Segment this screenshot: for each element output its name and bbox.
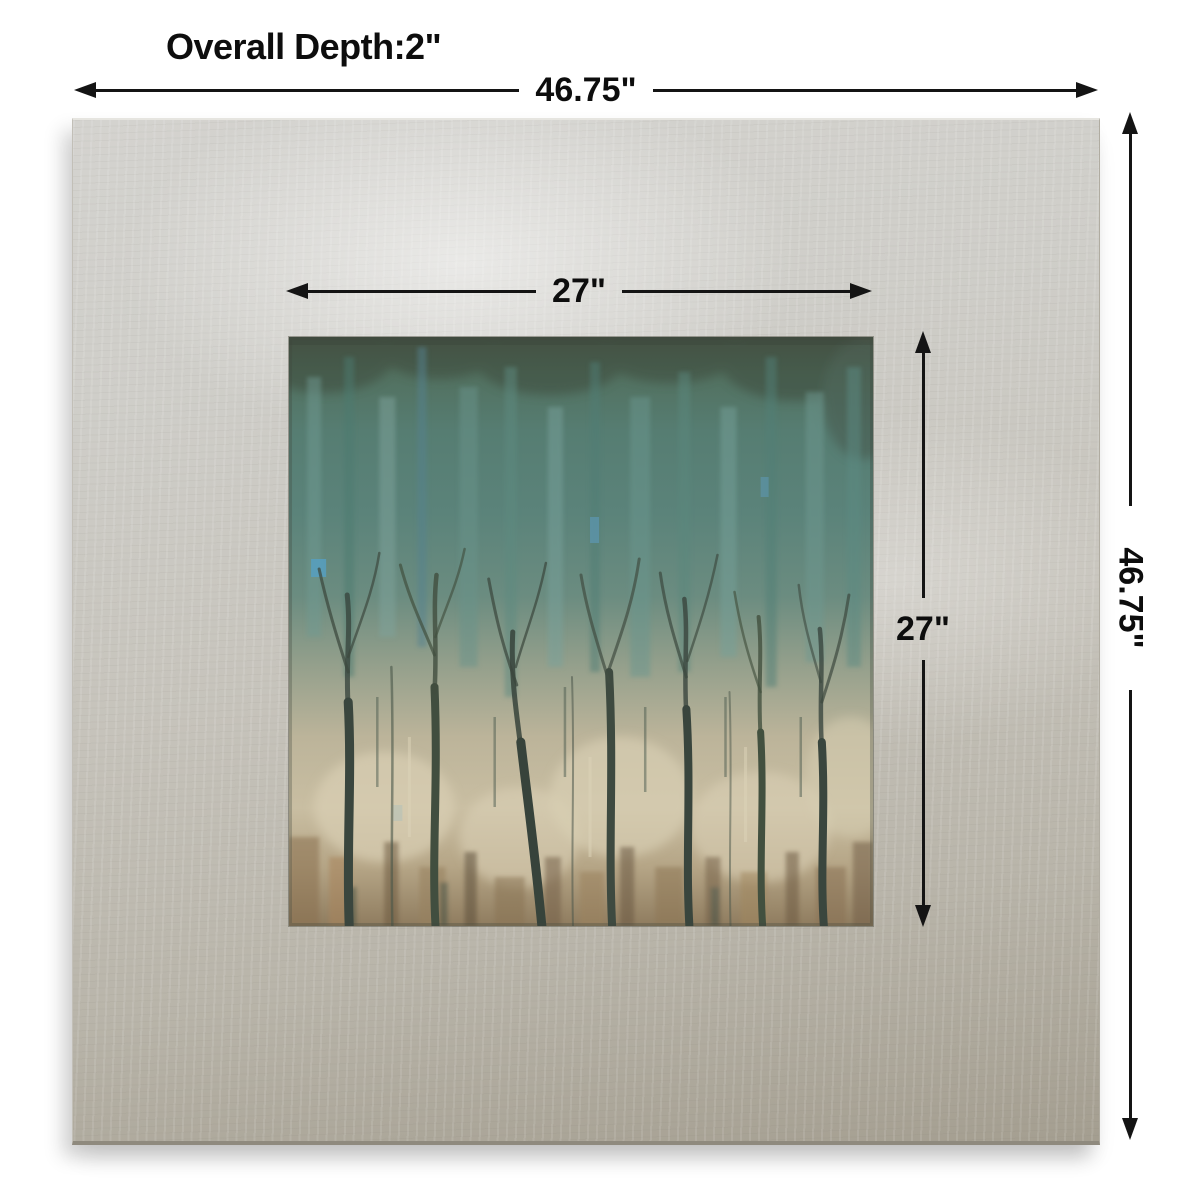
dimension-line	[622, 290, 850, 293]
dimension-line	[922, 660, 925, 905]
artwork-height-label: 27"	[896, 612, 950, 646]
arrow-right-icon	[850, 283, 872, 299]
dimension-line	[308, 290, 536, 293]
artwork-width-label: 27"	[552, 274, 606, 308]
arrow-left-icon	[286, 283, 308, 299]
product-dimension-image: Overall Depth:2" 46.75" 27" 27" 46.75"	[0, 0, 1200, 1200]
arrow-up-icon	[915, 331, 931, 353]
dimension-line	[1129, 690, 1132, 1118]
artwork-height-dimension: 27"	[895, 331, 951, 927]
painting-canvas	[289, 337, 873, 926]
arrow-up-icon	[1122, 112, 1138, 134]
abstract-tree-artwork	[289, 337, 873, 926]
overall-height-dimension: 46.75"	[1110, 112, 1150, 1140]
overall-width-label: 46.75"	[535, 73, 636, 107]
artwork-width-dimension: 27"	[286, 276, 872, 306]
arrow-left-icon	[74, 82, 96, 98]
dimension-line	[1129, 134, 1132, 506]
dimension-line	[922, 353, 925, 598]
arrow-down-icon	[1122, 1118, 1138, 1140]
overall-height-label-wrap: 46.75"	[1110, 506, 1150, 690]
arrow-right-icon	[1076, 82, 1098, 98]
overall-width-dimension: 46.75"	[74, 75, 1098, 105]
dimension-line	[653, 89, 1076, 92]
dimension-line	[96, 89, 519, 92]
overall-depth-label: Overall Depth:2"	[166, 26, 441, 68]
arrow-down-icon	[915, 905, 931, 927]
overall-height-label: 46.75"	[1111, 547, 1150, 648]
